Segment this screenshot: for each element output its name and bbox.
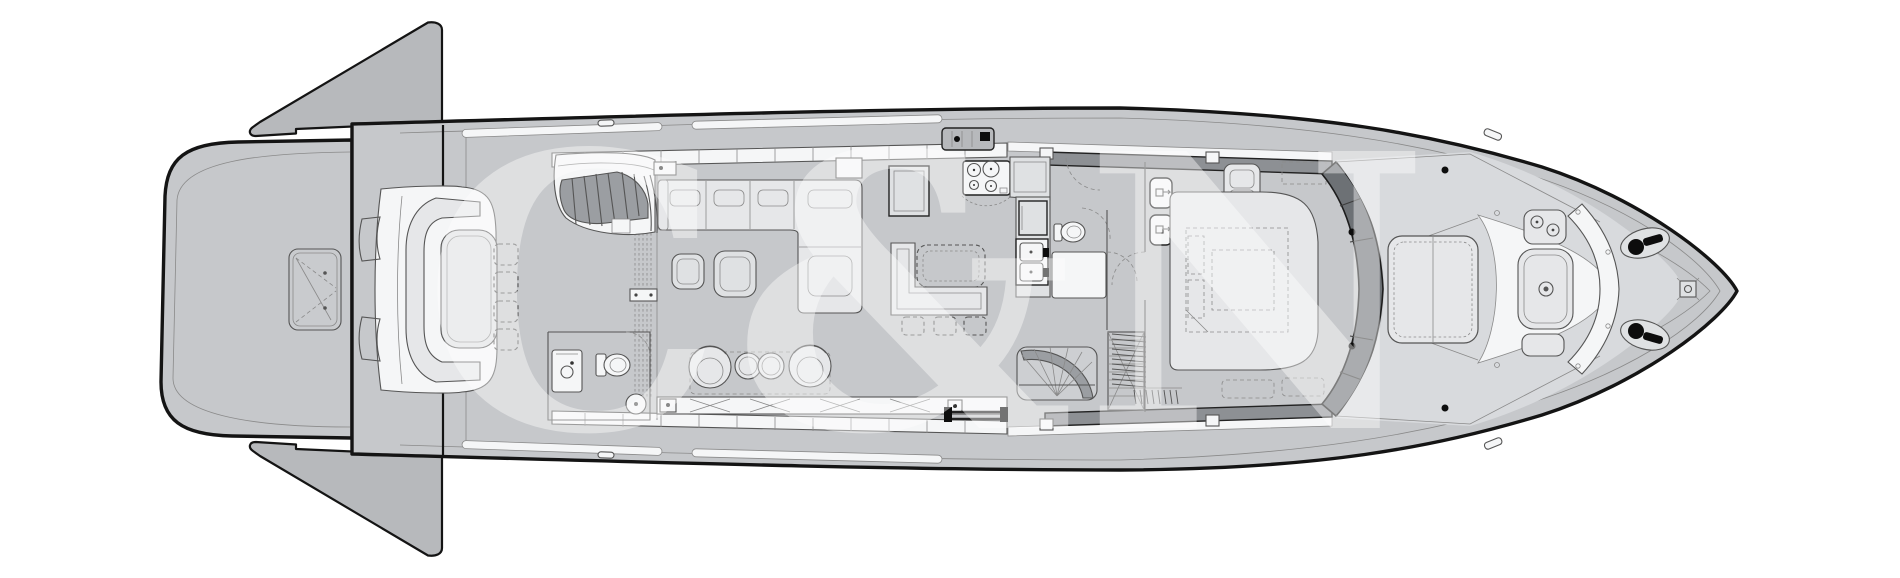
yacht-deck-plan: C&N xyxy=(0,0,1900,578)
bow-fitting xyxy=(1677,278,1699,300)
swim-platform xyxy=(161,140,352,438)
deck-plan-drawing: C&N xyxy=(0,0,1900,578)
deck-light xyxy=(1442,167,1449,174)
deck-light xyxy=(1442,405,1449,412)
watermark: C&N xyxy=(422,71,1439,518)
stern-wing-starboard xyxy=(250,442,442,556)
stern-wing-port xyxy=(250,22,442,136)
tender-garage-hatch xyxy=(289,249,341,330)
